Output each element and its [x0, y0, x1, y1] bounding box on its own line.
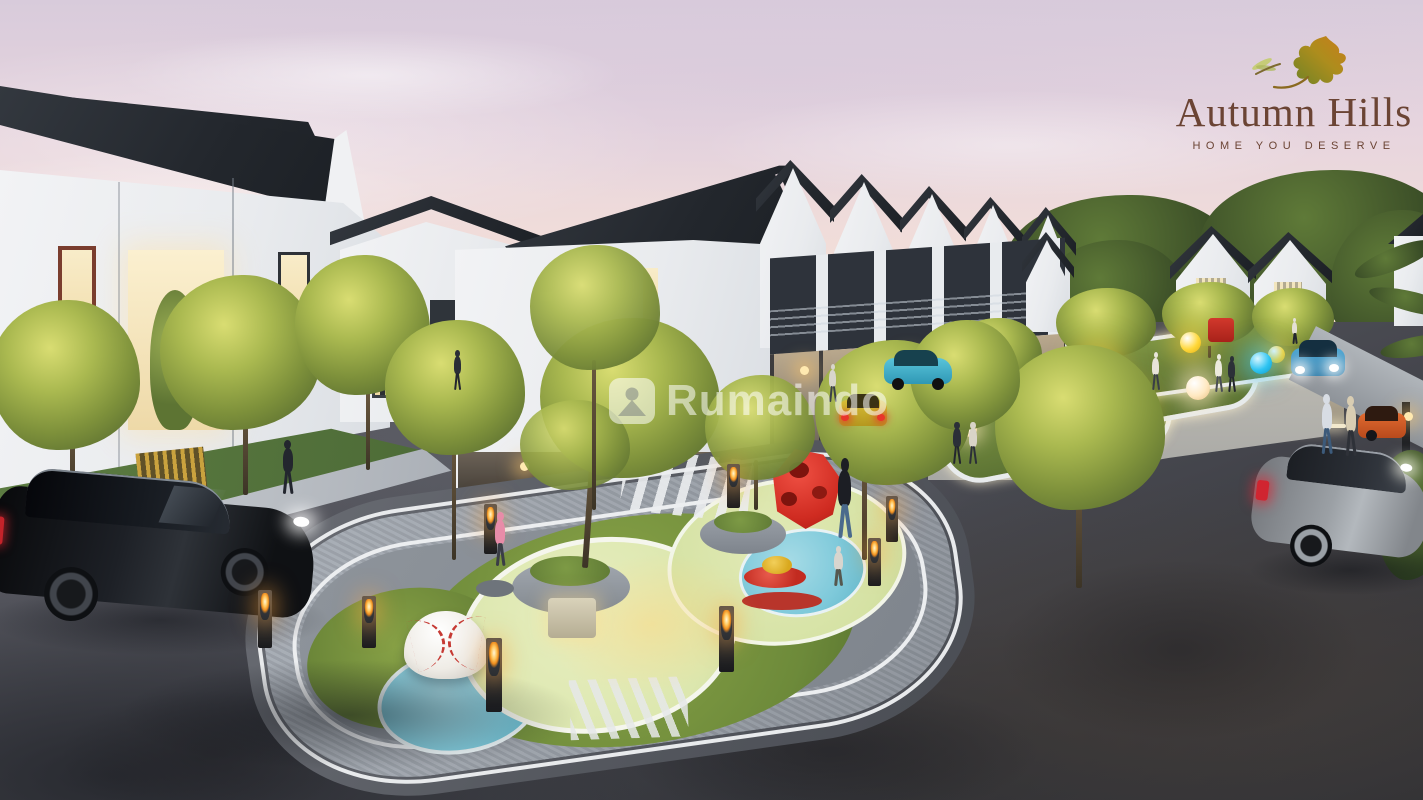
bollard-light: [362, 596, 376, 648]
blue-car-windshield: [1299, 340, 1337, 357]
child-playing: [831, 546, 846, 586]
cloud: [120, 30, 620, 120]
glow-orb-yellow: [1180, 332, 1201, 353]
pedestrian-couple: [1342, 396, 1360, 456]
person-in-park: [1150, 352, 1162, 390]
bollard-light: [868, 538, 881, 586]
spinner-base: [742, 592, 822, 610]
bollard-light: [719, 606, 734, 672]
watermark: Rumaindo: [608, 376, 889, 426]
tree-canopy: [530, 245, 660, 370]
bollard-light: [486, 638, 502, 712]
dragonfly: [1251, 56, 1280, 74]
orange-car: [1358, 406, 1406, 440]
person-at-house: [1290, 318, 1299, 344]
tree-trunk: [592, 360, 596, 510]
logo: Autumn Hills HOME YOU DESERVE: [1168, 34, 1420, 152]
gray-hatchback: [1246, 438, 1423, 576]
blue-car: [1291, 340, 1345, 378]
logo-title: Autumn Hills: [1168, 92, 1420, 133]
bollard-light: [886, 496, 898, 542]
tree-canopy: [995, 345, 1165, 510]
render-scene: Rumaindo Autumn Hills HOME YOU DESERVE: [0, 0, 1423, 800]
woman-photographing: [834, 458, 856, 538]
tree-canopy: [160, 275, 320, 430]
person-walking: [966, 422, 980, 464]
tree-canopy: [0, 300, 140, 450]
glow-orb-cyan: [1250, 352, 1272, 374]
center-planter-grass: [530, 556, 610, 586]
teal-car-wheel: [892, 378, 904, 390]
spinner-knob: [762, 556, 792, 574]
bollard-light: [258, 590, 272, 648]
teal-car-wheel: [932, 378, 944, 390]
orange-car-wheel: [1366, 430, 1377, 441]
tree-trunk: [366, 390, 370, 470]
climber-hole: [781, 492, 797, 506]
person-walking: [451, 350, 464, 390]
oak-leaf-dragonfly-icon: [1214, 34, 1374, 92]
child-with-backpack: [492, 512, 509, 566]
watermark-text: Rumaindo: [666, 376, 889, 426]
carport-light: [800, 366, 809, 375]
center-planter-pedestal: [548, 598, 596, 638]
person-walking: [279, 440, 297, 494]
blue-car-headlight: [1295, 366, 1305, 374]
person-walking: [950, 422, 964, 464]
teal-car: [884, 350, 952, 388]
red-mini-truck: [1208, 318, 1234, 342]
tree-trunk: [452, 440, 456, 560]
climber-hole: [812, 486, 827, 499]
island-shadow: [120, 660, 580, 770]
logo-tagline: HOME YOU DESERVE: [1168, 140, 1420, 152]
hatch-taillight: [1255, 480, 1269, 501]
teal-car-roof: [894, 350, 938, 366]
watermark-house-icon: [608, 376, 656, 426]
planter-2-grass: [714, 511, 772, 533]
glow-orb-white: [1186, 376, 1210, 400]
person-in-park: [1226, 356, 1238, 392]
blue-car-headlight: [1329, 364, 1339, 372]
person-in-park: [1213, 354, 1225, 392]
bollard-light: [727, 464, 740, 508]
orange-car-windows: [1365, 406, 1398, 421]
pedestrian-couple: [1318, 394, 1336, 454]
stool: [476, 580, 514, 597]
